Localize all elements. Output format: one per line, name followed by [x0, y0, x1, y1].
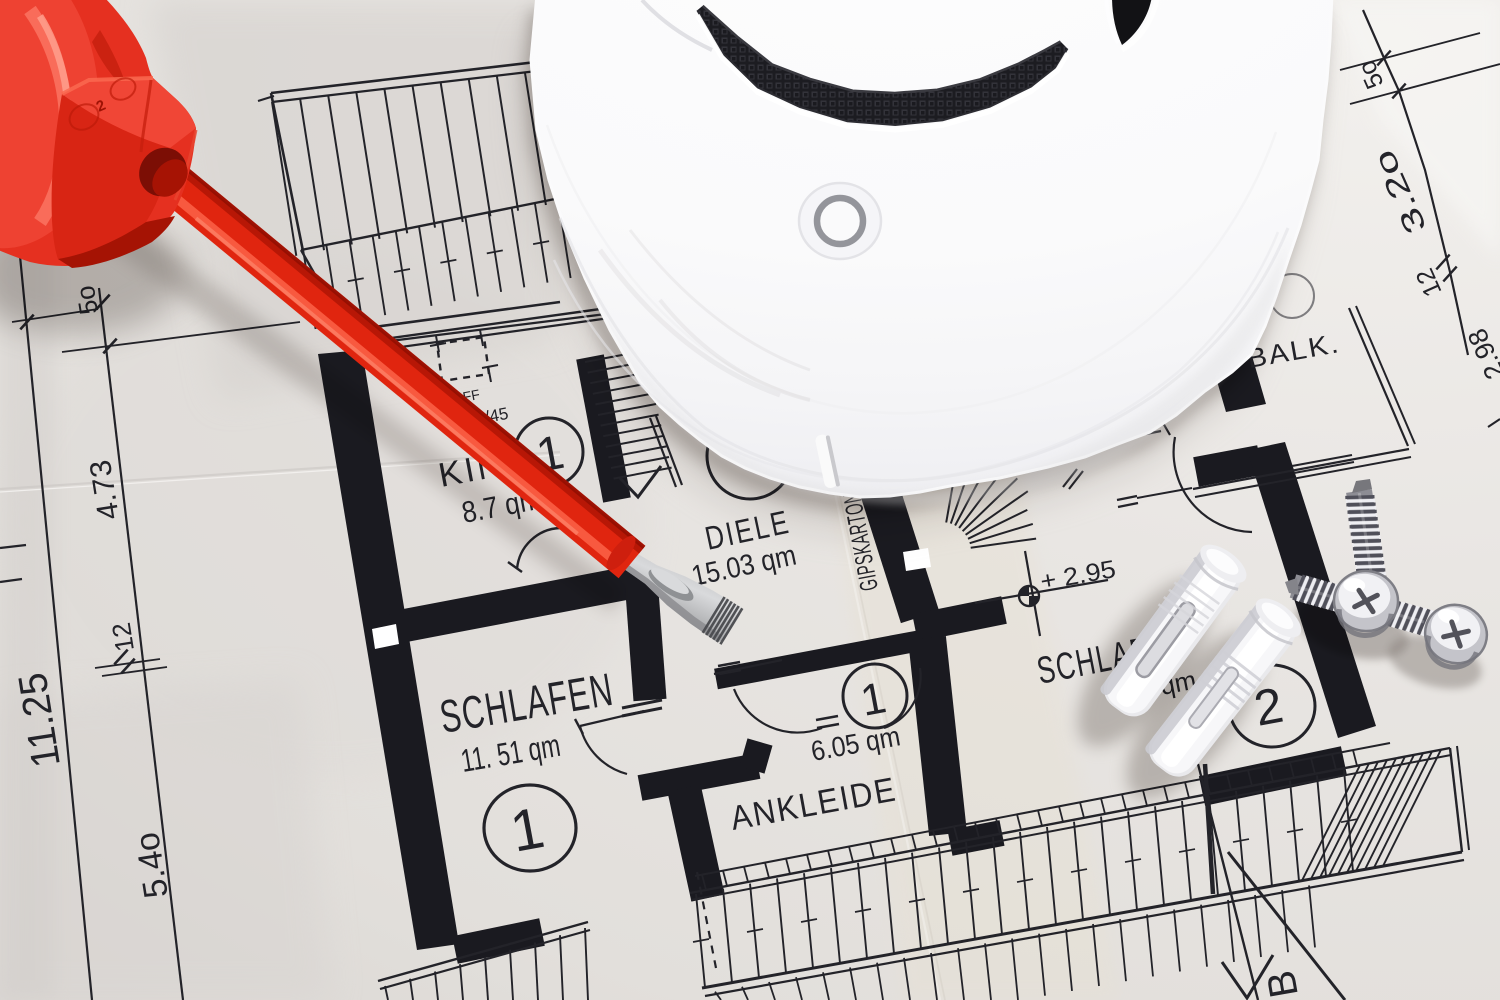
svg-text:12: 12 [106, 620, 140, 653]
